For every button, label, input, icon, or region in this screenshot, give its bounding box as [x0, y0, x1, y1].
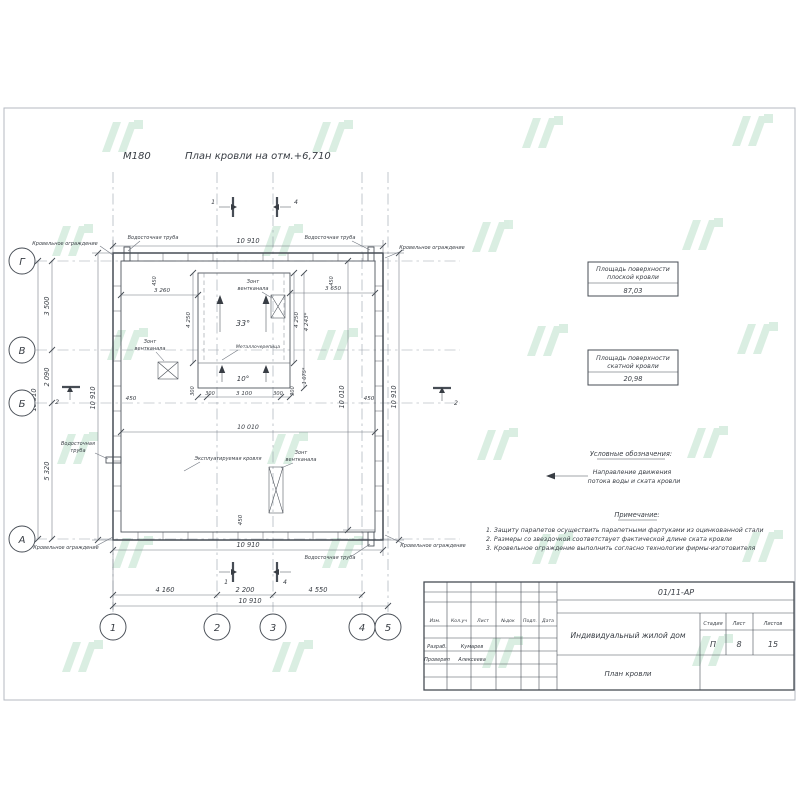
vent-leader — [262, 292, 272, 298]
drawing-sheet: М180 План кровли на отм.+6,710 33° 10° М… — [0, 0, 800, 800]
dim-left-seg3: 5 320 — [43, 462, 51, 481]
drain-pipe-label-left1: Водосточная — [61, 441, 95, 447]
drain-leader-left — [95, 453, 108, 459]
vent-label-line2: вентканала — [135, 346, 166, 352]
dim-overhang-right: 450 — [364, 396, 375, 402]
dim-overhang-left: 450 — [126, 396, 137, 402]
axis-row-label: А — [18, 535, 26, 546]
tb-stage-value: П — [710, 640, 716, 649]
dim-inner-height: 10 010 — [338, 385, 346, 408]
tb-name-checked: Алексеева — [457, 657, 486, 663]
dim-left-roof: 10 910 — [89, 386, 97, 409]
drain-pipe-icon — [368, 247, 374, 261]
section-arrow-shafts — [219, 207, 291, 572]
vent-label-line2: вентканала — [238, 286, 269, 292]
notes: Примечание: 1. Защиту парапетов осуществ… — [486, 511, 764, 552]
project-name: Индивидуальный жилой дом — [570, 631, 685, 640]
flow-arrow-icon — [546, 473, 555, 480]
note-2: 2. Размеры со звездочкой соответствует ф… — [486, 536, 732, 543]
dim-axis-total: 10 910 — [238, 597, 261, 605]
note-1: 1. Защиту парапетов осуществить парапетн… — [486, 527, 764, 534]
slope10-label: 10° — [237, 375, 249, 383]
drain-pipe-label-tr: Водосточная труба — [305, 235, 356, 241]
axis-col-label: 4 — [359, 623, 365, 634]
dim-axis-23: 2 200 — [236, 586, 255, 594]
section-4-label-bottom: 4 — [283, 579, 287, 586]
dim-top-total: 10 910 — [236, 237, 259, 245]
dim-strip-side-r-rot: 300 — [290, 386, 296, 396]
title-block: 01/11-АР Изм. Кол.уч Лист №док Подп. Дат… — [424, 582, 794, 690]
roof-fence-label-tr: Кровельное ограждение — [399, 245, 465, 251]
tb-col-izm: Изм. — [430, 618, 441, 624]
drain-leader-tr — [352, 241, 370, 250]
slope10-arrow-heads — [219, 365, 269, 373]
flat-roof-area-table: Площадь поверхности плоской кровли 87,03 — [588, 262, 678, 296]
axis-row-label: В — [19, 346, 26, 357]
dim-slope-left: 4 250 — [186, 312, 192, 328]
legend: Условные обозначения: Направление движен… — [546, 450, 680, 485]
sheet-frame — [4, 108, 795, 700]
dim-strip-side-l: 300 — [205, 391, 215, 397]
dim-strip-actual: 1 075* — [302, 367, 308, 384]
exploited-roof-leader — [184, 462, 200, 471]
roof-fence-label-tl: Кровельное ограждение — [32, 241, 98, 247]
doc-number: 01/11-АР — [658, 588, 694, 597]
tb-sheet-header: Лист — [732, 621, 747, 627]
dim-bottom-roof: 10 910 — [236, 541, 259, 549]
vent-label-line1: Зонт — [144, 339, 158, 345]
sloped-area-title1: Площадь поверхности — [596, 355, 670, 362]
note-3: 3. Кровельное ограждение выполнить согла… — [486, 545, 756, 552]
sheet-name: План кровли — [605, 670, 652, 678]
tb-sheets-value: 15 — [768, 640, 778, 649]
tb-name-developed: Кумарев — [461, 644, 484, 650]
slope33-arrow-heads — [217, 295, 270, 304]
flat-area-value: 87,03 — [624, 287, 643, 295]
vent-shaft-cross — [269, 467, 283, 513]
vent-label-line1: Зонт — [295, 450, 309, 456]
dim-slope-right: 4 250 — [294, 312, 300, 328]
axis-col-label: 1 — [110, 623, 116, 634]
vent-hood-cross — [158, 362, 178, 379]
tb-sheets-header: Листов — [763, 621, 783, 627]
drain-pipe-label-bot: Водосточная труба — [305, 555, 356, 561]
roof-plan-drawing: М180 План кровли на отм.+6,710 33° 10° М… — [0, 0, 800, 800]
flat-area-title1: Площадь поверхности — [596, 266, 670, 273]
tb-col-ndok: №док — [500, 618, 515, 624]
tb-stage-header: Стадия — [703, 621, 722, 627]
dim-axis-34: 4 550 — [309, 586, 328, 594]
dim-strip-side-r: 300 — [273, 391, 283, 397]
vent-label-line2: вентканала — [286, 457, 317, 463]
vent-label-line1: Зонт — [247, 279, 261, 285]
tb-sheet-value: 8 — [736, 640, 741, 649]
slope33-label: 33° — [236, 319, 250, 328]
exploited-roof-label: Эксплуатируемая кровля — [194, 456, 262, 462]
dim-left-seg1: 3 500 — [43, 297, 51, 316]
sloped-area-title2: скатной кровли — [607, 363, 658, 370]
sloped-area-value: 20,98 — [624, 375, 643, 383]
dim-inner-width: 10 010 — [237, 424, 259, 431]
axis-row-label: Б — [19, 399, 26, 410]
material-label: Металлочерепица — [236, 344, 280, 350]
tb-role-checked: Проверил — [424, 657, 450, 663]
section-1-label-top: 1 — [211, 199, 215, 206]
axis-col-label: 3 — [270, 623, 276, 634]
section-4-label-top: 4 — [294, 199, 298, 206]
page-title: План кровли на отм.+6,710 — [185, 151, 331, 162]
dim-left-seg2: 2 090 — [43, 368, 51, 387]
tb-col-data: Дата — [541, 618, 554, 624]
dim-strip-mid: 3 100 — [236, 391, 252, 397]
dim-top-right: 3 650 — [325, 286, 341, 292]
legend-line2: потока воды и ската кровли — [588, 478, 681, 485]
dim-slope-actual: 4 243* — [304, 312, 310, 331]
tb-col-koluch: Кол.уч — [451, 618, 467, 624]
section-1-label-bottom: 1 — [224, 579, 228, 586]
dim-axis-12: 4 160 — [156, 586, 175, 594]
tb-col-podp: Подп. — [523, 618, 537, 624]
tb-col-list: Лист — [476, 618, 489, 624]
sloped-roof-area-table: Площадь поверхности скатной кровли 20,98 — [588, 350, 678, 385]
dim-overhang-tr: 450 — [329, 276, 335, 286]
dim-overhang-tl: 450 — [152, 276, 158, 286]
drain-pipe-icon — [124, 247, 130, 261]
vent-hood-top: Зонт вентканала — [238, 279, 285, 318]
drain-pipe-label-tl: Водосточная труба — [128, 235, 179, 241]
material-leader — [222, 350, 238, 360]
vent-hood-left: Зонт вентканала — [135, 339, 178, 379]
flat-area-title2: плоской кровли — [607, 274, 659, 281]
fence-leader-bl — [96, 537, 113, 546]
section-2-label-left: 2 — [55, 399, 59, 406]
roof-fence-label-br: Кровельное ограждение — [400, 543, 466, 549]
dim-top-left: 3 260 — [154, 288, 170, 294]
section-2-label-right: 2 — [454, 400, 458, 407]
roof-fence-label-bl: Кровельное ограждение — [33, 545, 99, 551]
scale-label: М180 — [123, 151, 151, 162]
legend-heading: Условные обозначения: — [590, 450, 672, 458]
axis-col-label: 2 — [214, 623, 220, 634]
dim-strip-side-l-rot: 300 — [190, 386, 196, 396]
legend-line1: Направление движения — [593, 469, 672, 476]
drain-pipe-label-left2: труба — [70, 448, 85, 454]
axis-col-label: 5 — [385, 623, 391, 634]
dim-right-total: 10 910 — [390, 385, 398, 408]
notes-heading: Примечание: — [614, 511, 659, 519]
tb-role-developed: Разраб. — [427, 644, 447, 650]
dim-overhang-bottom: 450 — [238, 514, 244, 525]
vent-leader — [156, 352, 164, 361]
